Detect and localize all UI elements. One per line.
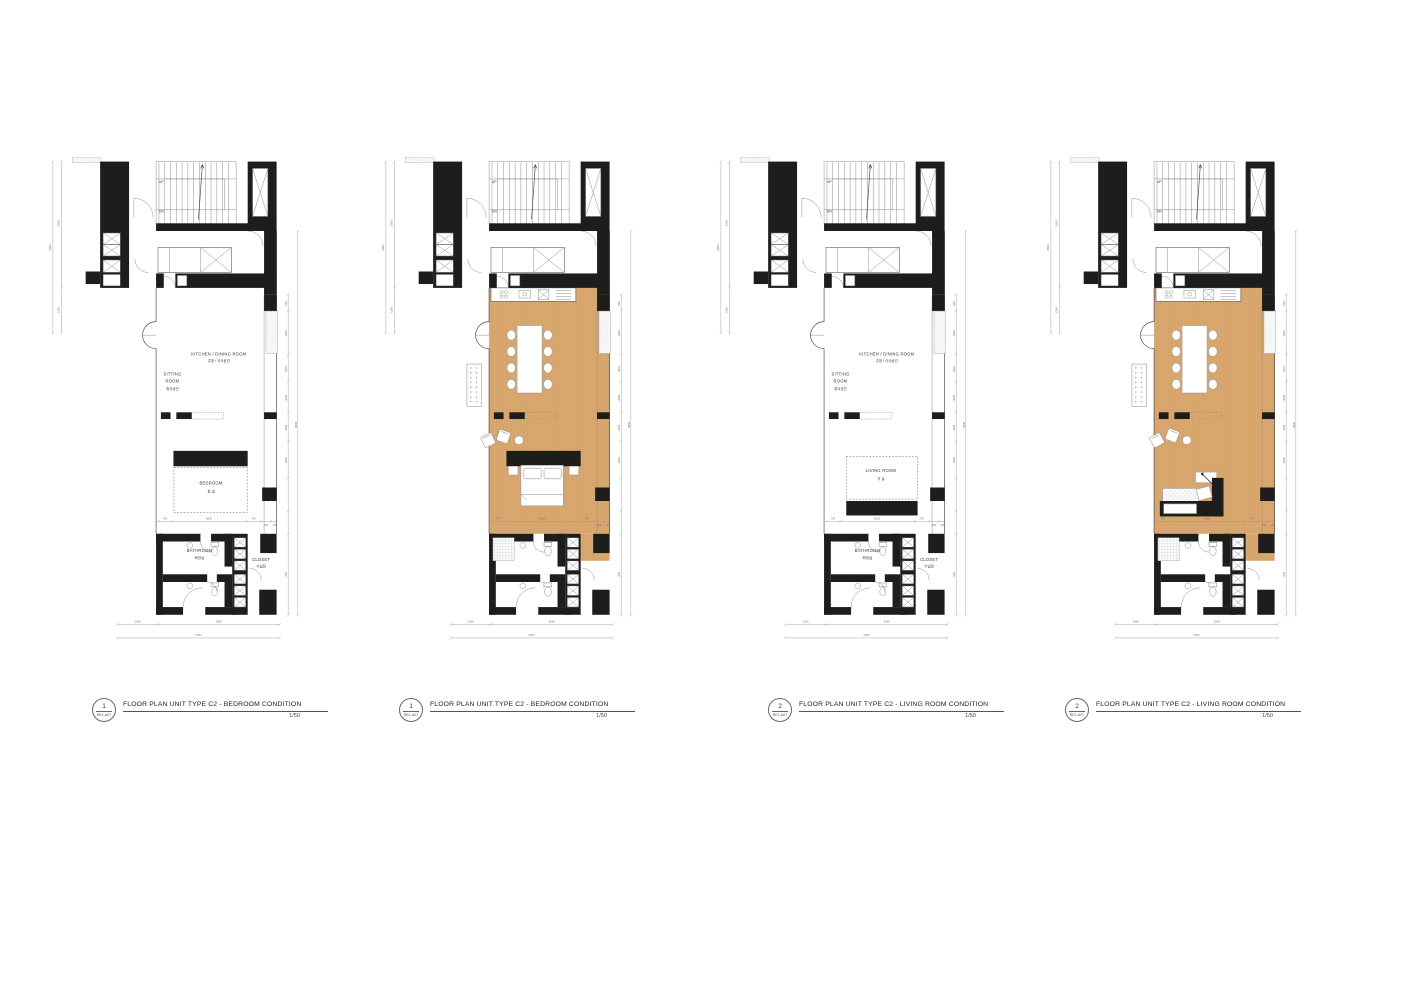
closet-label-kr: 수납장 — [924, 564, 934, 569]
drawing-scale: 1/50 — [965, 713, 976, 719]
closet-label: CLOSET — [252, 557, 270, 562]
floor-plan-living-line: KITCHEN / DINING ROOM 주방 / 식사공간 SITTING … — [708, 150, 998, 722]
detail-ref: RE1-A07 — [773, 713, 788, 717]
detail-number: 2 — [1069, 703, 1085, 712]
drawing-title: FLOOR PLAN UNIT TYPE C2 - BEDROOM CONDIT… — [123, 701, 328, 708]
drawing-title: FLOOR PLAN UNIT TYPE C2 - LIVING ROOM CO… — [799, 701, 1004, 708]
living-condition-lines — [846, 457, 917, 516]
bathroom-label: BATHROOM — [855, 548, 881, 553]
bathroom-label-kr: 화장실 — [863, 555, 873, 560]
sitting-label-kr: 휴식공간 — [166, 386, 180, 391]
kitchen-label-kr: 주방 / 식사공간 — [208, 358, 231, 363]
drawing-scale: 1/50 — [289, 713, 300, 719]
floor-plan-living-rendered: 2 RE1-A07 FLOOR PLAN UNIT TYPE C2 - LIVI… — [1038, 150, 1328, 722]
floor-plan-drawing — [373, 150, 663, 690]
detail-ref: RE1-A07 — [404, 713, 419, 717]
sitting-label-1: SITTING — [163, 372, 181, 377]
sitting-label-kr: 휴식공간 — [834, 386, 848, 391]
sitting-label-2: ROOM — [166, 378, 180, 383]
detail-ref: RE1-A07 — [97, 713, 112, 717]
room-label: LIVING ROOM — [866, 468, 896, 473]
detail-number: 1 — [96, 703, 112, 712]
title-block: 2 RE1-A07 FLOOR PLAN UNIT TYPE C2 - LIVI… — [768, 698, 1004, 722]
room-label-kr: 침 실 — [207, 488, 214, 493]
detail-marker: 2 RE1-A07 — [1065, 698, 1089, 722]
detail-number: 2 — [772, 703, 788, 712]
floor-plan-drawing: KITCHEN / DINING ROOM 주방 / 식사공간 SITTING … — [40, 150, 330, 690]
detail-marker: 1 RE1-A07 — [399, 698, 423, 722]
floor-plan-bedroom-line: KITCHEN / DINING ROOM 주방 / 식사공간 SITTING … — [40, 150, 330, 722]
detail-number: 1 — [403, 703, 419, 712]
room-label-kr: 거 실 — [877, 476, 884, 481]
drawing-scale: 1/50 — [1262, 713, 1273, 719]
bed-headboard-block — [173, 451, 247, 466]
sitting-label-1: SITTING — [831, 372, 849, 377]
sofa-block — [846, 501, 917, 515]
floor-plan-bedroom-rendered: 1 RE1-A07 FLOOR PLAN UNIT TYPE C2 - BEDR… — [373, 150, 663, 722]
closet-label-kr: 수납장 — [256, 564, 266, 569]
kitchen-label: KITCHEN / DINING ROOM — [859, 351, 914, 356]
bathroom-label-kr: 화장실 — [195, 555, 205, 560]
floor-plan-drawing: KITCHEN / DINING ROOM 주방 / 식사공간 SITTING … — [708, 150, 998, 690]
room-label: BEDROOM — [200, 481, 223, 486]
closet-label: CLOSET — [920, 557, 938, 562]
detail-ref: RE1-A07 — [1070, 713, 1085, 717]
drawing-title: FLOOR PLAN UNIT TYPE C2 - BEDROOM CONDIT… — [430, 701, 635, 708]
kitchen-label-kr: 주방 / 식사공간 — [876, 358, 899, 363]
title-block: 1 RE1-A07 FLOOR PLAN UNIT TYPE C2 - BEDR… — [92, 698, 328, 722]
drawing-title: FLOOR PLAN UNIT TYPE C2 - LIVING ROOM CO… — [1096, 701, 1301, 708]
sitting-label-2: ROOM — [834, 378, 848, 383]
detail-marker: 2 RE1-A07 — [768, 698, 792, 722]
kitchen-label: KITCHEN / DINING ROOM — [191, 351, 246, 356]
bathroom-label: BATHROOM — [187, 548, 213, 553]
title-block: 1 RE1-A07 FLOOR PLAN UNIT TYPE C2 - BEDR… — [399, 698, 635, 722]
drawing-sheet: KITCHEN / DINING ROOM 주방 / 식사공간 SITTING … — [0, 0, 1414, 1000]
floor-plan-drawing — [1038, 150, 1328, 690]
drawing-scale: 1/50 — [596, 713, 607, 719]
title-block: 2 RE1-A07 FLOOR PLAN UNIT TYPE C2 - LIVI… — [1065, 698, 1301, 722]
detail-marker: 1 RE1-A07 — [92, 698, 116, 722]
